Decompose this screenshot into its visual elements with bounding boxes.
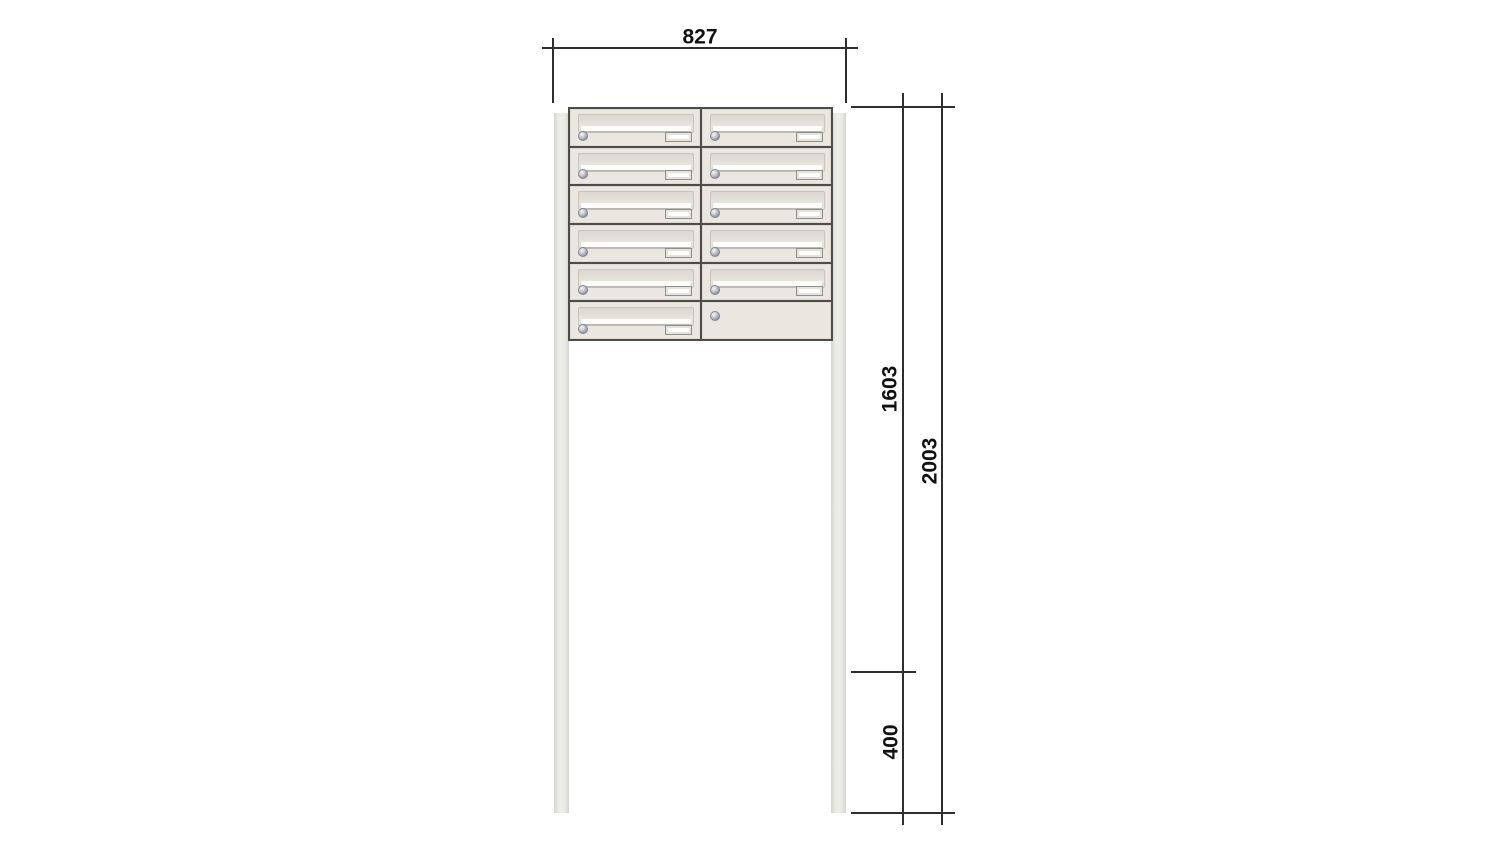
- lock-cylinder-icon: [578, 285, 588, 295]
- name-plate: [796, 286, 823, 296]
- name-plate: [665, 209, 692, 219]
- lock-cylinder-icon: [710, 208, 720, 218]
- name-plate: [665, 286, 692, 296]
- width-extension-line-left: [552, 38, 554, 103]
- total-height-dimension-label: 2003: [920, 438, 941, 485]
- lock-cylinder-icon: [710, 247, 720, 257]
- blank-panel: [702, 302, 832, 339]
- mailbox-door: [570, 264, 700, 301]
- mailbox-door: [570, 302, 700, 339]
- name-plate: [796, 209, 823, 219]
- name-plate-window: [668, 173, 689, 177]
- lock-cylinder-icon: [578, 324, 588, 334]
- lock-cylinder-icon: [578, 247, 588, 257]
- letter-flap: [578, 153, 694, 172]
- mailbox-door: [570, 225, 700, 262]
- height-extension-line-top: [851, 106, 955, 108]
- mailbox-grid: [568, 107, 833, 341]
- mailbox-door: [702, 109, 832, 146]
- name-plate-window: [668, 328, 689, 332]
- name-plate: [665, 132, 692, 142]
- name-plate: [665, 325, 692, 335]
- letter-slot: [581, 281, 691, 286]
- name-plate: [665, 170, 692, 180]
- name-plate: [796, 132, 823, 142]
- name-plate-window: [668, 135, 689, 139]
- lock-cylinder-icon: [578, 169, 588, 179]
- letter-flap: [578, 230, 694, 249]
- height-extension-line-middle: [851, 671, 916, 673]
- letter-slot: [713, 126, 823, 131]
- name-plate-window: [799, 135, 820, 139]
- letter-flap: [710, 153, 826, 172]
- name-plate-window: [799, 251, 820, 255]
- name-plate-window: [799, 212, 820, 216]
- letter-flap: [578, 191, 694, 210]
- name-plate: [796, 248, 823, 258]
- letter-slot: [713, 165, 823, 170]
- letter-flap: [710, 191, 826, 210]
- letter-slot: [713, 203, 823, 208]
- letter-slot: [581, 165, 691, 170]
- letter-slot: [581, 203, 691, 208]
- width-extension-line-right: [845, 38, 847, 103]
- name-plate: [665, 248, 692, 258]
- letter-flap: [710, 269, 826, 288]
- name-plate-window: [668, 289, 689, 293]
- dimension-drawing: 827 1603 2003 400: [0, 0, 1500, 856]
- letter-flap: [578, 269, 694, 288]
- lock-cylinder-icon: [710, 131, 720, 141]
- left-post: [554, 113, 569, 813]
- name-plate-window: [799, 173, 820, 177]
- letter-slot: [581, 319, 691, 324]
- lock-cylinder-icon: [578, 131, 588, 141]
- lock-cylinder-icon: [578, 208, 588, 218]
- upper-height-dimension-label: 1603: [880, 366, 901, 413]
- letter-flap: [710, 230, 826, 249]
- letter-flap: [710, 114, 826, 133]
- name-plate-window: [668, 212, 689, 216]
- letter-slot: [581, 242, 691, 247]
- lower-height-dimension-label: 400: [881, 724, 902, 759]
- width-dimension-label: 827: [682, 27, 717, 48]
- mailbox-door: [570, 186, 700, 223]
- mailbox-door: [570, 148, 700, 185]
- lock-cylinder-icon: [710, 285, 720, 295]
- right-post: [831, 113, 846, 813]
- name-plate-window: [799, 289, 820, 293]
- mailbox-door: [702, 264, 832, 301]
- name-plate: [796, 170, 823, 180]
- letter-slot: [713, 242, 823, 247]
- letter-flap: [578, 307, 694, 326]
- mailbox-door: [702, 186, 832, 223]
- mailbox-door: [702, 148, 832, 185]
- lock-cylinder-icon: [710, 169, 720, 179]
- letter-flap: [578, 114, 694, 133]
- height-dimension-line-inner: [902, 93, 904, 825]
- letter-slot: [713, 281, 823, 286]
- letter-slot: [581, 126, 691, 131]
- lock-cylinder-icon: [710, 311, 720, 321]
- mailbox-door: [702, 225, 832, 262]
- name-plate-window: [668, 251, 689, 255]
- height-extension-line-bottom: [851, 812, 955, 814]
- mailbox-door: [570, 109, 700, 146]
